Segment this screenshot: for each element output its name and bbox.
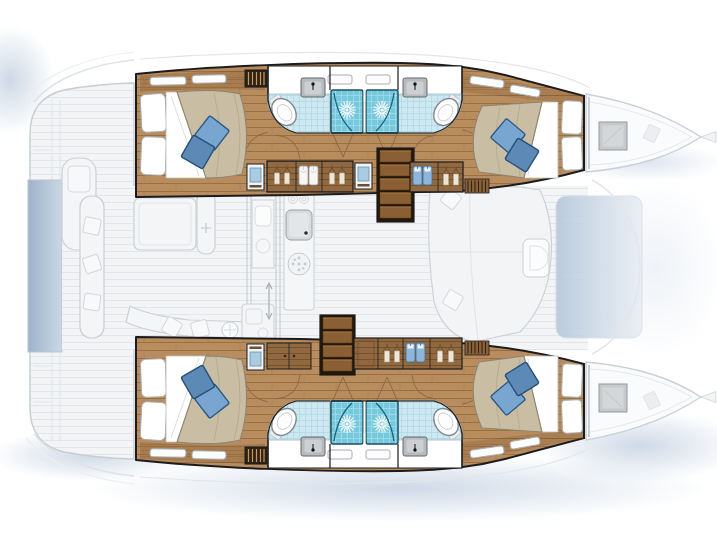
catamaran-floorplan: Catamaran sailing yacht — 4-cabin accomm… <box>0 0 717 537</box>
floorplan-canvas: Catamaran sailing yacht — 4-cabin accomm… <box>0 0 717 537</box>
galley-burner <box>288 253 310 275</box>
helm-console <box>68 166 90 192</box>
tender-platform <box>28 180 62 352</box>
companionway-steps <box>320 315 355 375</box>
two-door-cabinet <box>267 343 311 369</box>
galley-faucet <box>304 231 308 235</box>
galley-island <box>284 188 314 310</box>
cockpit-table <box>134 198 196 250</box>
hanging-locker <box>354 338 462 369</box>
wet-bar-sink <box>255 206 271 226</box>
hanging-locker <box>267 161 353 192</box>
saloon-table <box>523 239 549 277</box>
companionway-steps <box>377 148 414 222</box>
hanging-locker <box>410 162 463 192</box>
